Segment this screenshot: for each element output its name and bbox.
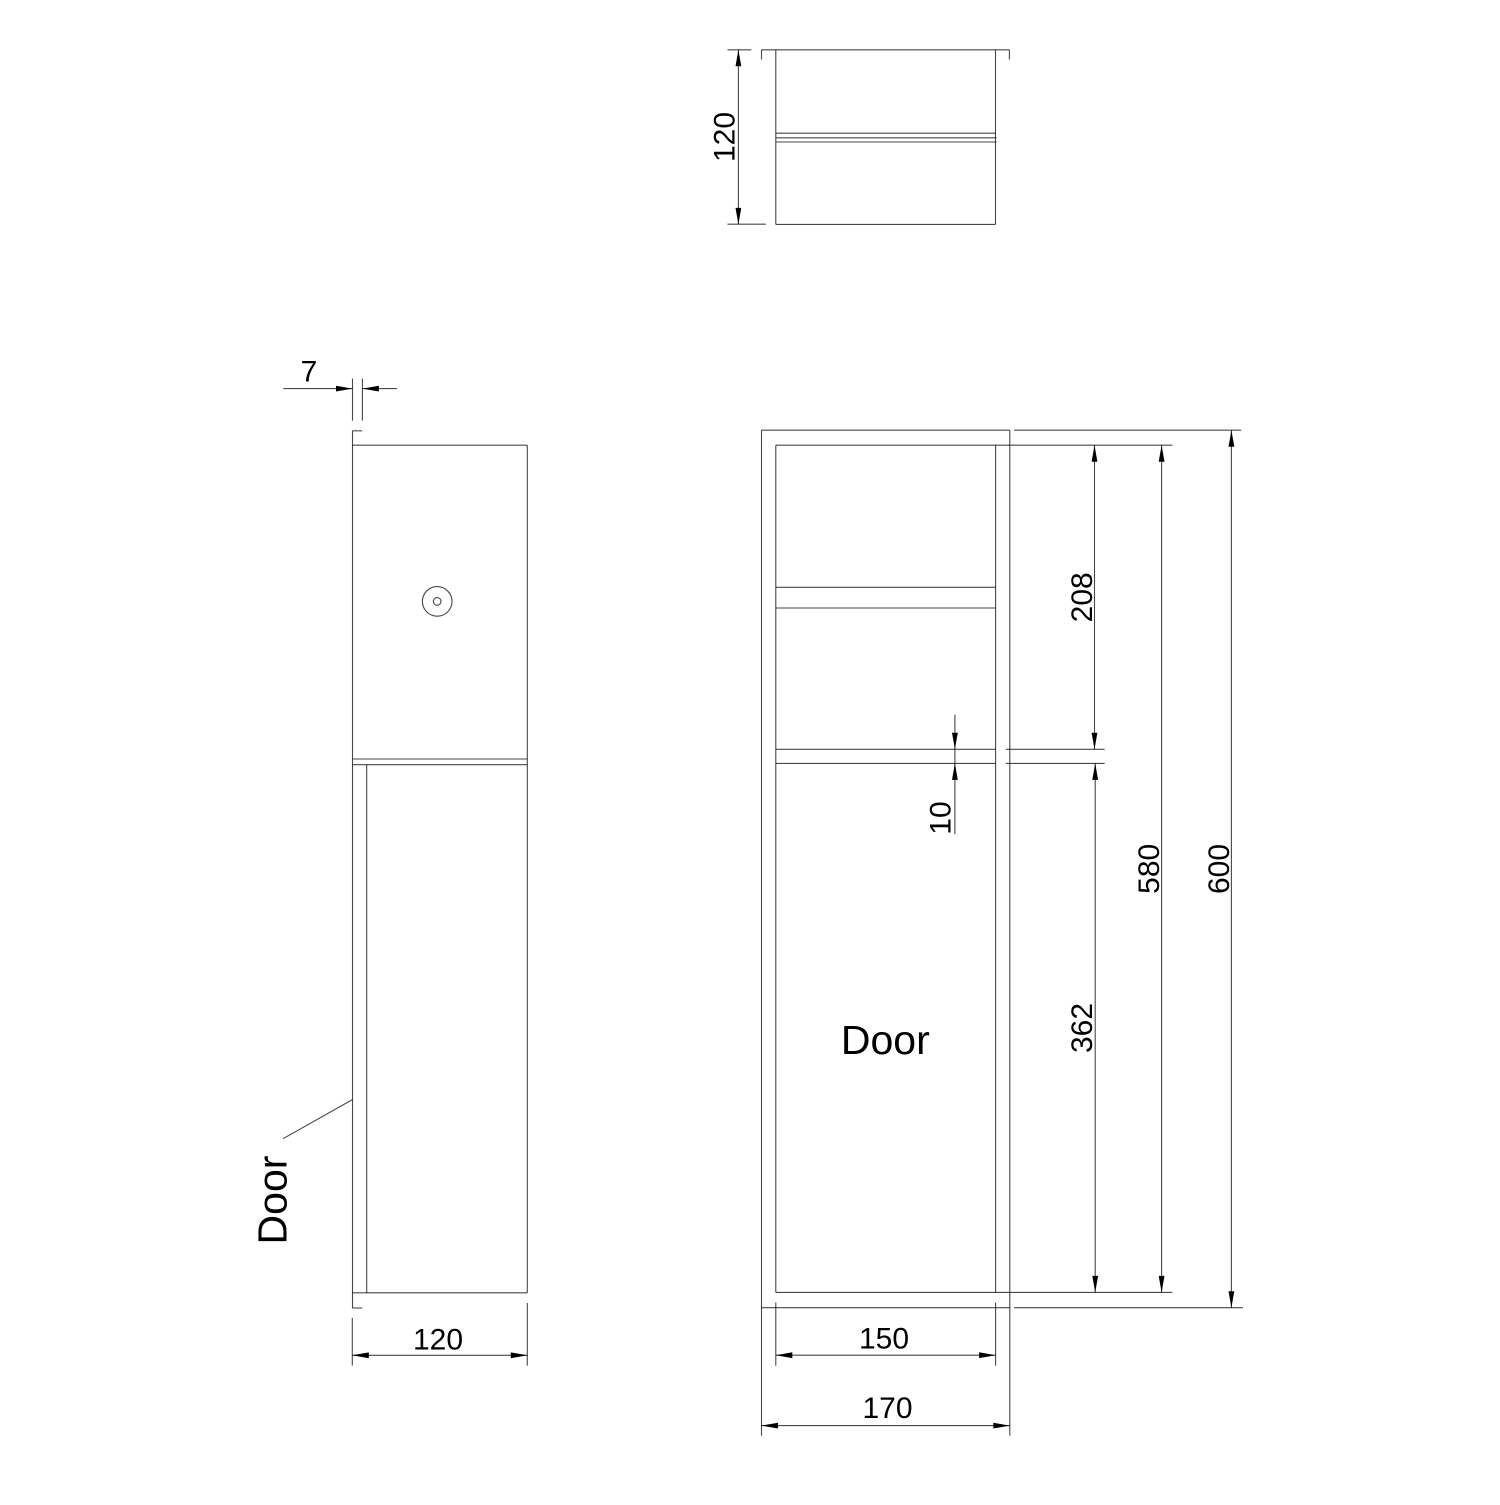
svg-text:170: 170 xyxy=(862,1392,912,1425)
svg-text:208: 208 xyxy=(1066,572,1099,622)
svg-text:Door: Door xyxy=(249,1156,295,1245)
svg-text:600: 600 xyxy=(1203,844,1236,894)
svg-text:150: 150 xyxy=(859,1322,909,1355)
svg-text:120: 120 xyxy=(708,112,741,162)
svg-text:10: 10 xyxy=(925,801,958,834)
svg-text:120: 120 xyxy=(413,1324,463,1357)
svg-text:7: 7 xyxy=(301,356,318,389)
svg-text:Door: Door xyxy=(841,1017,930,1063)
svg-text:580: 580 xyxy=(1133,844,1166,894)
svg-text:362: 362 xyxy=(1066,1003,1099,1053)
